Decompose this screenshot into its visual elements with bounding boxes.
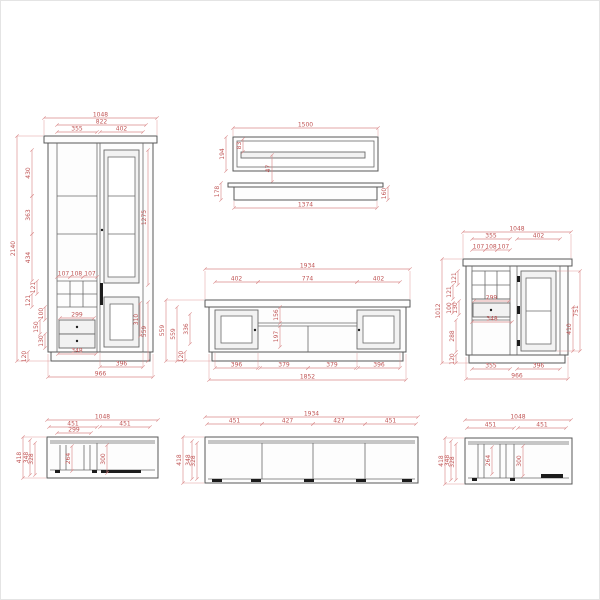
furniture-outline (234, 187, 377, 200)
dim-label-sec_left: 355 (71, 125, 83, 132)
dim-label-plinth_h: 120 (178, 351, 185, 363)
hardware-mark (251, 479, 261, 482)
dim-label-drawer_w: 299 (486, 294, 498, 301)
furniture-outline (205, 437, 418, 483)
dim-label-drw_a: 100 (38, 308, 45, 320)
dim-label-edge: 83 (236, 142, 243, 150)
dim-label-row5: 121 (25, 295, 32, 307)
dim-label-b2: 396 (533, 362, 545, 369)
dim-label-door_h: 1275 (141, 210, 148, 225)
knob (358, 329, 360, 331)
dim-label-i1: 264 (65, 453, 72, 465)
dim-label-total_w: 1048 (93, 111, 108, 118)
dim-label-inner_w: 822 (96, 118, 108, 125)
dim-label-i2: 300 (516, 455, 523, 467)
knob (254, 329, 256, 331)
hardware-mark (100, 283, 103, 305)
dim-label-w4: 451 (385, 417, 397, 424)
dim-label-pane3: 107 (498, 243, 510, 250)
dim-label-drawer_out: 348 (486, 315, 498, 322)
dim-label-i2: 300 (100, 453, 107, 465)
dim-label-inner_w: 299 (68, 426, 80, 433)
panel-inset (363, 316, 394, 343)
hardware-mark (55, 470, 60, 473)
dim-label-base_w: 1852 (300, 373, 315, 380)
dim-label-drawer_out: 348 (71, 347, 83, 354)
hardware-mark (92, 470, 97, 473)
panel-inset (108, 157, 135, 277)
view-display-cabinet-front: 1048822355402214043036343412751071081071… (10, 111, 159, 378)
dim-label-total_w: 1934 (304, 410, 319, 417)
view-wall-shelf: 150019483471781601374 (214, 121, 390, 209)
dim-label-w1: 451 (485, 421, 497, 428)
dim-label-h_left: 178 (214, 186, 221, 198)
dim-label-panel_h: 336 (183, 323, 190, 335)
dim-label-top_w: 1500 (298, 121, 313, 128)
dim-label-w3: 427 (333, 417, 345, 424)
dim-label-total_h: 2140 (10, 241, 17, 256)
dim-label-door_h: 751 (573, 305, 580, 317)
dim-label-row3: 434 (25, 252, 32, 264)
dim-label-b4: 396 (373, 361, 385, 368)
dim-label-sec_l: 402 (231, 275, 243, 282)
hardware-mark (510, 478, 515, 481)
view-highboard-top: 1048451451418348328264300 (438, 413, 573, 485)
dim-label-total_w: 1048 (95, 413, 110, 420)
furniture-outline (212, 352, 403, 361)
dim-label-d2: 328 (449, 456, 456, 468)
knob (101, 229, 103, 231)
dim-label-lower_h: 559 (141, 326, 148, 338)
dim-label-sec_l: 355 (485, 232, 497, 239)
panel-inset (110, 304, 133, 340)
dim-label-w2: 451 (536, 421, 548, 428)
dim-label-i1: 264 (485, 455, 492, 467)
knob (76, 340, 78, 342)
dim-label-b1: 396 (231, 361, 243, 368)
dim-label-sec_m: 774 (302, 275, 314, 282)
dim-label-drw_c: 130 (38, 335, 45, 347)
dim-label-pane1: 107 (58, 270, 70, 277)
dim-label-open_top: 156 (273, 309, 280, 321)
knob (490, 309, 492, 311)
dim-label-open_bottom: 197 (273, 331, 280, 343)
dim-label-base_w: 966 (511, 372, 523, 379)
dim-label-sec_right: 402 (116, 125, 128, 132)
dim-label-h_right: 160 (381, 188, 388, 200)
dim-label-b3: 379 (326, 361, 338, 368)
dim-label-open_h: 288 (449, 330, 456, 342)
dim-label-front_w: 1374 (298, 201, 313, 208)
furniture-outline (44, 136, 157, 143)
dim-label-w2: 451 (119, 420, 131, 427)
dim-label-drw_b: 150 (33, 321, 40, 333)
dim-label-b2: 379 (278, 361, 290, 368)
furniture-outline (463, 259, 572, 266)
dim-label-pane3: 107 (84, 270, 96, 277)
dim-label-w2: 427 (282, 417, 294, 424)
view-sideboard-front: 1934402774402559559336120156197396379379… (159, 262, 412, 381)
hardware-mark (472, 478, 477, 481)
dim-label-panel_h: 410 (566, 323, 573, 335)
dim-label-door_w: 396 (116, 360, 128, 367)
dim-label-depth: 418 (16, 452, 23, 464)
dim-label-drw_b: 100 (446, 302, 453, 314)
view-sideboard-top: 1934451427427451418348328 (176, 410, 420, 484)
view-display-cabinet-top: 1048451451299418348328264300 (16, 413, 160, 479)
view-highboard-front: 1048355402107108107101212112113010028812… (435, 225, 582, 380)
hardware-mark (517, 306, 520, 314)
furniture-outline (51, 352, 150, 361)
dim-label-total_w: 1048 (509, 225, 524, 232)
dim-label-depth: 194 (219, 148, 226, 160)
furniture-outline (469, 355, 565, 363)
hardware-mark (304, 479, 314, 482)
dim-label-d2: 328 (28, 453, 35, 465)
dim-label-plinth_h: 120 (21, 351, 28, 363)
dim-label-pane2: 108 (71, 270, 83, 277)
hardware-mark (541, 474, 563, 478)
drawing-sheet: 1048822355402214043036343412751071081071… (0, 0, 600, 600)
hardware-mark (402, 479, 412, 482)
dim-label-h_total: 559 (159, 325, 166, 337)
dim-label-row1: 121 (451, 272, 458, 284)
dim-label-row4: 121 (30, 282, 37, 294)
dim-label-base_w: 966 (95, 370, 107, 377)
dim-label-panel_h: 310 (133, 314, 140, 326)
dim-label-row2: 363 (25, 209, 32, 221)
dim-label-total_w: 1934 (300, 262, 315, 269)
dim-label-drawer_w: 299 (71, 311, 83, 318)
dim-label-depth: 418 (176, 454, 183, 466)
hardware-mark (356, 479, 366, 482)
furniture-outline (228, 183, 383, 187)
hardware-mark (517, 276, 520, 282)
dim-label-slot_off: 47 (265, 165, 272, 173)
hardware-mark (212, 479, 222, 482)
dim-label-pane2: 108 (485, 243, 497, 250)
dim-label-total_h: 1012 (435, 303, 442, 318)
dim-label-w1: 451 (229, 417, 241, 424)
panel-inset (221, 316, 252, 343)
furniture-dimension-diagram: 1048822355402214043036343412751071081071… (0, 0, 600, 600)
dim-label-sec_r: 402 (373, 275, 385, 282)
dim-label-total_w: 1048 (510, 413, 525, 420)
dim-label-b1: 355 (485, 362, 497, 369)
knob (76, 326, 78, 328)
dim-label-pane1: 107 (473, 243, 485, 250)
dim-label-row1: 430 (25, 167, 32, 179)
dim-label-row2: 121 (446, 286, 453, 298)
dim-label-h_body: 559 (170, 328, 177, 340)
hardware-mark (517, 340, 520, 346)
furniture-panel (241, 152, 365, 158)
dim-label-d2: 328 (190, 455, 197, 467)
furniture-outline (205, 300, 410, 307)
dim-label-sec_r: 402 (533, 232, 545, 239)
